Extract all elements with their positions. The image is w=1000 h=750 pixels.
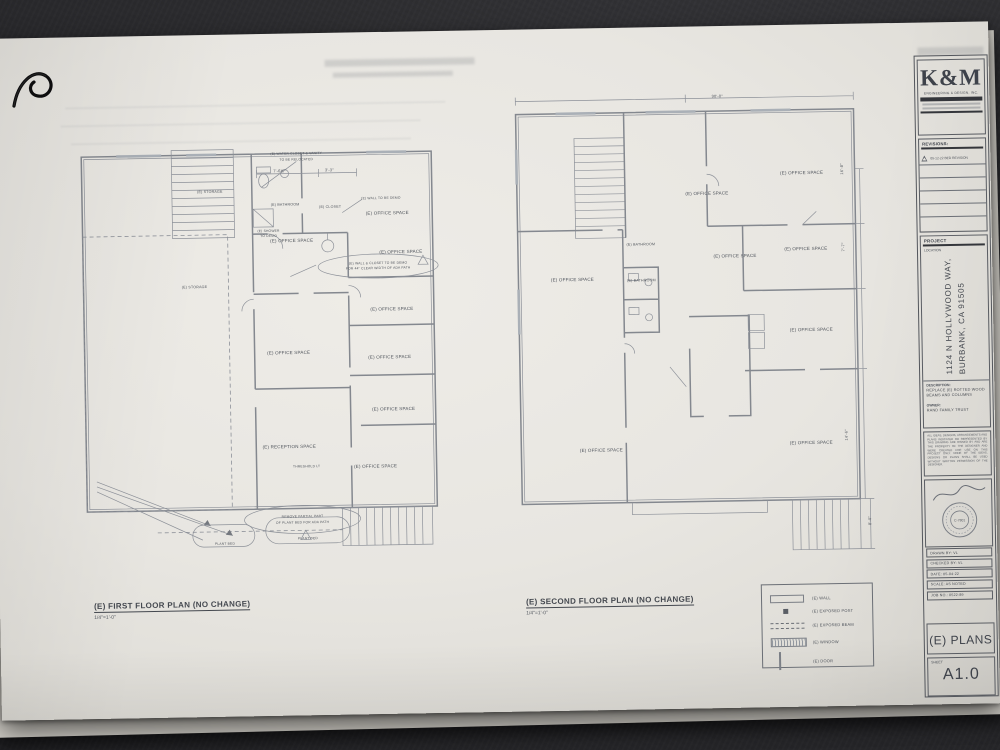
legend: (E) WALL (E) EXPOSED POST (E) EXPOSED BE… xyxy=(761,582,874,668)
titleblock-sheet-number: SHEET A1.0 xyxy=(927,657,996,697)
room-label-office: (E) OFFICE SPACE xyxy=(790,327,833,333)
revision-row-empty xyxy=(919,163,985,177)
room-label-office: (E) OFFICE SPACE xyxy=(551,277,594,283)
room-label-bathroom: (E) BATHROOM xyxy=(271,202,300,207)
firm-address-line xyxy=(922,106,980,109)
note-threshold: THRESHOLD LT xyxy=(293,464,320,468)
legend-row: (E) EXPOSED BEAM xyxy=(770,617,865,634)
titleblock-sheet-title: (E) PLANS xyxy=(926,622,995,654)
address-line: 1124 N HOLLYWOOD WAY, xyxy=(943,258,954,375)
drawn-by-row: DRAWN BY: VL xyxy=(926,548,992,558)
photo-scene: (E) WATER CLOSET & VANITY TO BE RELOCATE… xyxy=(0,0,1000,750)
owner-text: RAND FAMILY TRUST xyxy=(927,408,987,414)
divider xyxy=(923,379,989,381)
legend-label: (E) DOOR xyxy=(813,658,833,663)
titleblock-disclaimer: ALL IDEAS, DESIGNS, ARRANGEMENTS AND PLA… xyxy=(923,431,992,477)
room-label-office: (E) OFFICE SPACE xyxy=(270,238,313,244)
legend-row: (E) DOOR xyxy=(771,650,866,672)
legend-label: (E) WINDOW xyxy=(813,639,839,644)
room-label-office: (E) OFFICE SPACE xyxy=(370,306,413,312)
dim-label: 8'-0" xyxy=(867,516,872,525)
room-label-office: (E) OFFICE SPACE xyxy=(784,246,827,252)
room-label-office: (E) OFFICE SPACE xyxy=(267,350,310,356)
project-address: 1124 N HOLLYWOOD WAY, BURBANK, CA 91505 xyxy=(921,257,989,375)
room-label-office: (E) OFFICE SPACE xyxy=(780,170,823,176)
room-label-office: (E) OFFICE SPACE xyxy=(368,354,411,360)
room-label-office: (E) OFFICE SPACE xyxy=(354,463,397,469)
room-label-office: (E) OFFICE SPACE xyxy=(685,190,728,196)
room-label-closet: (E) CLOSET xyxy=(319,205,341,209)
titleblock: K&M ENGINEERING & DESIGN, INC. REVISIONS… xyxy=(914,54,999,697)
bleed-line xyxy=(61,119,421,127)
dim-label: 90'-0" xyxy=(711,93,722,98)
revision-row-empty xyxy=(920,176,986,190)
sheet-number: A1.0 xyxy=(928,666,994,685)
door-symbol xyxy=(779,652,781,670)
dim-label: 3'-3" xyxy=(325,167,334,172)
dim-label: 14'-6" xyxy=(844,429,849,440)
window-symbol xyxy=(771,637,807,647)
room-label-office: (E) OFFICE SPACE xyxy=(372,406,415,412)
sheet-title: (E) PLANS xyxy=(927,623,994,654)
signature-stroke xyxy=(933,485,985,500)
km-logo: K&M xyxy=(918,65,984,89)
second-floor-plan-drawing xyxy=(495,83,923,570)
logo-bar xyxy=(920,96,982,101)
drawing-sheet: (E) WATER CLOSET & VANITY TO BE RELOCATE… xyxy=(0,21,1000,720)
sheet-label: SHEET xyxy=(931,660,994,665)
bleed-line xyxy=(65,101,445,110)
titleblock-logo-box: K&M ENGINEERING & DESIGN, INC. xyxy=(917,58,986,135)
room-label-office: (E) OFFICE SPACE xyxy=(790,440,833,446)
pen-mark xyxy=(0,40,90,130)
first-floor-plan-scale: 1/4"=1'-0" xyxy=(94,615,116,621)
wall-symbol xyxy=(770,594,804,603)
legend-label: (E) WALL xyxy=(812,595,831,600)
titleblock-info: DRAWN BY: VL CHECKED BY: VL DATE: 05-04-… xyxy=(925,546,994,621)
second-floor-plan-title: (E) SECOND FLOOR PLAN (NO CHANGE) xyxy=(526,595,694,609)
bleed-through-text xyxy=(325,57,475,67)
revision-entry: 05-12-22 BED REVISION xyxy=(930,156,968,161)
bleed-through-text xyxy=(333,71,453,78)
titleblock-project: PROJECT LOCATION 1124 N HOLLYWOOD WAY, B… xyxy=(920,234,991,429)
legend-label: (E) EXPOSED BEAM xyxy=(812,622,854,628)
dim-label: 16'-8" xyxy=(839,163,844,174)
stamp-seal: C-7801 xyxy=(925,479,993,547)
address-line: BURBANK, CA 91505 xyxy=(956,257,967,374)
disclaimer-text: ALL IDEAS, DESIGNS, ARRANGEMENTS AND PLA… xyxy=(927,434,988,468)
note-water-closet: TO BE RELOCATED xyxy=(279,157,313,162)
room-label-office: (E) OFFICE SPACE xyxy=(366,210,409,216)
post-symbol xyxy=(783,609,788,614)
revision-row-empty xyxy=(920,215,986,229)
job-number-row: JOB NO.: 0522-89 xyxy=(927,590,993,600)
room-label-office: (E) OFFICE SPACE xyxy=(580,447,623,453)
dim-label: 7'-7" xyxy=(840,242,845,251)
first-floor-plan-title: (E) FIRST FLOOR PLAN (NO CHANGE) xyxy=(94,599,250,613)
seal-number: C-7801 xyxy=(954,518,965,522)
room-label-office: (E) OFFICE SPACE xyxy=(713,253,756,259)
revision-delta-icon xyxy=(921,155,927,161)
room-label-office: (E) OFFICE SPACE xyxy=(379,249,422,255)
legend-row: (E) WINDOW xyxy=(771,632,866,652)
beam-symbol xyxy=(770,622,804,629)
firm-name: ENGINEERING & DESIGN, INC. xyxy=(918,90,984,95)
project-bar xyxy=(923,243,985,246)
room-label-bathroom: (E) BATHROOM xyxy=(627,278,656,283)
revision-row-empty xyxy=(920,189,986,203)
revisions-bar xyxy=(921,146,983,150)
revision-row-empty xyxy=(920,202,986,216)
room-label-storage: (E) STORAGE xyxy=(182,285,208,289)
checked-by-row: CHECKED BY: VL xyxy=(926,558,992,568)
scale-row: SCALE: AS NOTED xyxy=(927,579,993,589)
titleblock-revisions: REVISIONS: 05-12-22 BED REVISION xyxy=(918,137,988,232)
second-floor-plan-scale: 1/4"=1'-0" xyxy=(526,610,548,616)
titleblock-stamp: C-7801 xyxy=(924,478,993,547)
room-label-storage: (E) STORAGE xyxy=(197,190,223,194)
legend-label: (E) EXPOSED POST xyxy=(812,608,853,614)
logo-bar xyxy=(921,110,983,113)
label-plant-bed: PLANT BED xyxy=(215,542,235,546)
date-row: DATE: 05-04-22 xyxy=(927,569,993,579)
note-shower-demo: (E) SHOWER xyxy=(257,229,279,233)
label-plant-bed: PLANT BED xyxy=(298,536,318,540)
room-label-bathroom: (E) BATHROOM xyxy=(626,242,655,247)
firm-address-line xyxy=(922,102,980,105)
dim-label: 7'-6½" xyxy=(273,168,286,173)
note-wall-demo: (E) WALL TO BE DEMO xyxy=(361,196,400,201)
description-text: REPLACE (E) ROTTED WOOD BEAMS AND COLUMN… xyxy=(926,387,986,398)
room-label-reception: (E) RECEPTION SPACE xyxy=(263,444,317,450)
location-label: LOCATION xyxy=(924,247,987,252)
note-plant-bed: REMOVE PARTIAL PART xyxy=(282,514,324,519)
